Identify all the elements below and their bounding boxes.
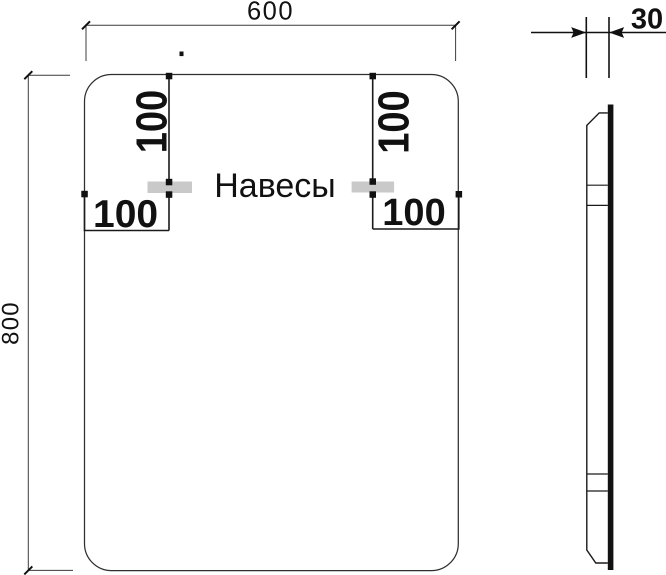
svg-text:100: 100 (127, 90, 176, 153)
svg-text:100: 100 (382, 192, 445, 234)
svg-text:30: 30 (631, 4, 663, 36)
svg-text:600: 600 (247, 0, 294, 26)
svg-text:800: 800 (0, 301, 25, 345)
svg-text:100: 100 (93, 193, 158, 236)
svg-text:Навесы: Навесы (214, 167, 336, 205)
svg-text:100: 100 (369, 90, 418, 153)
